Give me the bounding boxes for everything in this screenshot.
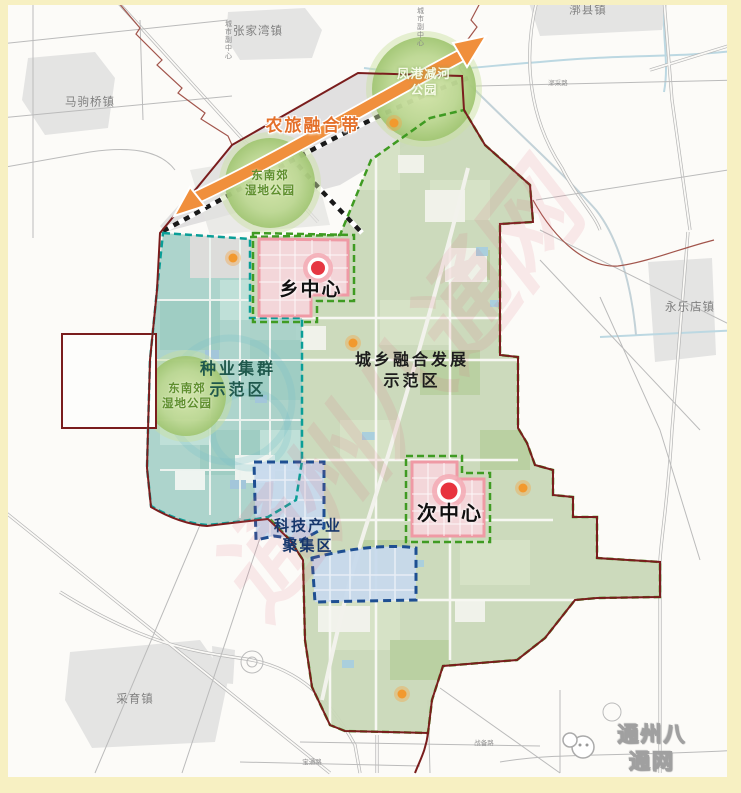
frame-border-left (0, 0, 8, 793)
sub-center-marker (432, 474, 466, 508)
frame-border-top (0, 0, 741, 5)
map-canvas (0, 0, 741, 793)
frame-border-bottom (0, 777, 741, 793)
boundary-enclave (62, 334, 156, 428)
frame-border-right (727, 0, 741, 793)
township-center-marker (303, 253, 333, 283)
planning-map: 通州八通网 张家湾镇 漷县镇 马驹桥镇 永乐店镇 采育镇 种业集群 示范区 城乡… (0, 0, 741, 793)
